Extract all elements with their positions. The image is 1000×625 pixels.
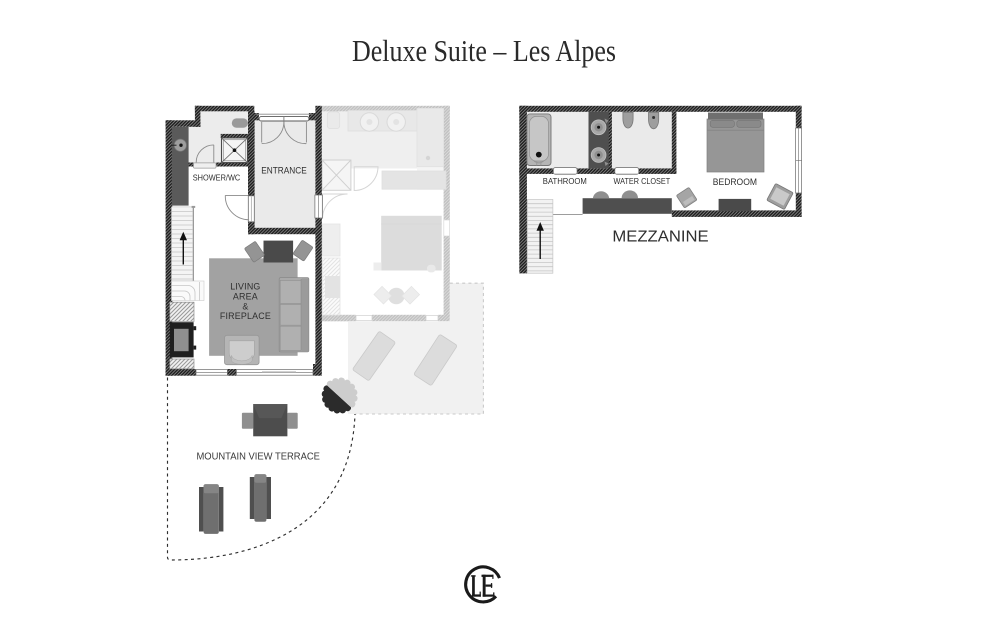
svg-text:MEZZANINE: MEZZANINE	[612, 228, 708, 245]
svg-text:LIVING: LIVING	[230, 282, 260, 292]
svg-text:&: &	[242, 302, 248, 312]
svg-text:AREA: AREA	[233, 291, 258, 301]
svg-text:Deluxe Suite – Les Alpes: Deluxe Suite – Les Alpes	[352, 33, 616, 68]
svg-text:ENTRANCE: ENTRANCE	[261, 166, 307, 177]
svg-text:SHOWER/WC: SHOWER/WC	[193, 172, 241, 182]
svg-text:BATHROOM: BATHROOM	[543, 176, 587, 186]
svg-text:BEDROOM: BEDROOM	[713, 177, 757, 187]
svg-text:FIREPLACE: FIREPLACE	[220, 311, 271, 321]
svg-text:WATER CLOSET: WATER CLOSET	[614, 176, 671, 186]
svg-text:MOUNTAIN VIEW TERRACE: MOUNTAIN VIEW TERRACE	[196, 451, 320, 462]
